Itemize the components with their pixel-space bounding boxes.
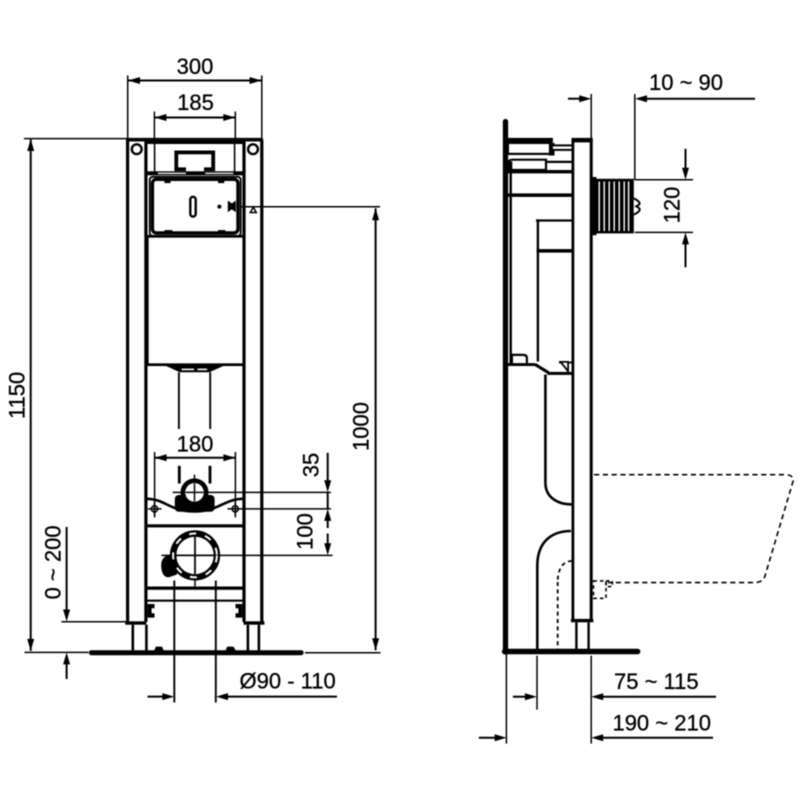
- svg-text:0 ~ 200: 0 ~ 200: [40, 525, 65, 599]
- svg-text:185: 185: [177, 90, 214, 115]
- svg-text:1000: 1000: [349, 402, 374, 451]
- svg-text:120: 120: [660, 187, 685, 224]
- svg-text:100: 100: [293, 513, 318, 550]
- svg-text:10 ~ 90: 10 ~ 90: [649, 70, 723, 95]
- svg-text:1150: 1150: [4, 372, 29, 419]
- svg-text:300: 300: [177, 54, 214, 79]
- svg-text:180: 180: [177, 432, 214, 457]
- svg-text:75 ~ 115: 75 ~ 115: [614, 669, 699, 694]
- svg-text:35: 35: [299, 453, 324, 477]
- svg-text:190 ~ 210: 190 ~ 210: [612, 710, 710, 735]
- svg-text:Ø90 - 110: Ø90 - 110: [240, 669, 336, 694]
